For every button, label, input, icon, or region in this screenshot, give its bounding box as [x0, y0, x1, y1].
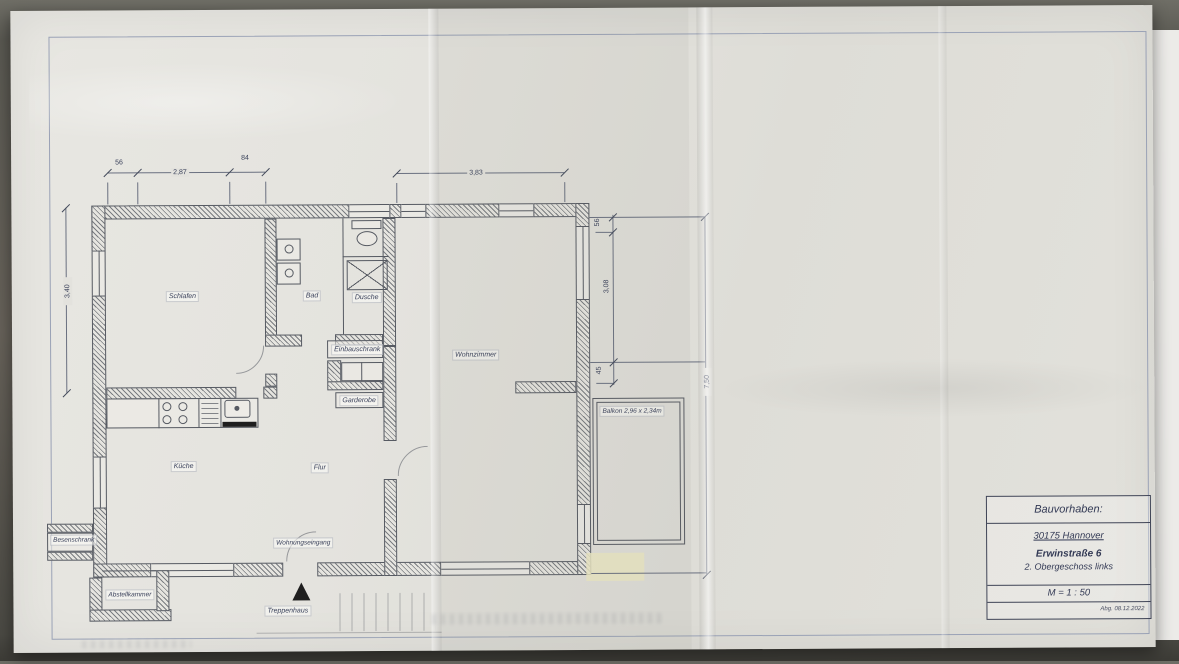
balcony-inner-line: [596, 401, 681, 540]
window-symbol: [349, 204, 389, 218]
wall-segment: [384, 479, 398, 576]
title-block-scale: M = 1 : 50: [987, 584, 1150, 602]
title-block-header: Bauvorhaben:: [987, 496, 1150, 524]
stove-burner-icon: [162, 415, 171, 424]
room-label-einbauschrank: Einbauschrank: [331, 344, 383, 355]
wall-segment: [156, 570, 169, 611]
wall-segment: [233, 563, 283, 577]
room-label-abstellkammer: Abstellkammer: [105, 589, 154, 600]
dim-label: 3,40: [63, 277, 72, 305]
balcony-outline: [592, 397, 685, 544]
witness-line: [107, 182, 108, 204]
room-label-bad: Bad: [303, 290, 322, 301]
wall-segment: [383, 346, 396, 441]
window-symbol: [93, 457, 107, 507]
dim-label: 56: [115, 158, 123, 167]
wall-segment: [47, 552, 93, 561]
witness-line: [396, 183, 397, 203]
dim-label: 56: [593, 214, 602, 230]
window-symbol: [441, 561, 529, 575]
title-block-city: 30175 Hannover: [987, 530, 1150, 542]
door-swing-arc: [236, 346, 264, 374]
wall-segment: [389, 204, 401, 218]
room-label-wohnungseingang: Wohnungseingang: [273, 537, 333, 548]
drainer-symbol: [201, 403, 218, 425]
dim-label: 45: [595, 362, 604, 378]
show-through-text: [431, 613, 661, 625]
stair-lines: [339, 593, 435, 632]
window-symbol: [401, 204, 425, 218]
entrance-arrow-icon: [292, 582, 310, 600]
dim-label: 3,83: [467, 169, 485, 178]
dim-label: 2,87: [171, 168, 189, 177]
title-block-street: Erwinstraße 6: [987, 548, 1150, 560]
wall-segment: [576, 299, 591, 505]
room-label-treppenhaus: Treppenhaus: [264, 605, 311, 616]
wall-segment: [263, 387, 277, 399]
wall-segment: [575, 203, 589, 227]
stove-burner-icon: [178, 415, 187, 424]
witness-line: [137, 182, 138, 204]
witness-line: [229, 182, 230, 204]
room-label-flur: Flur: [311, 462, 329, 473]
counter-divider: [198, 398, 199, 428]
sink-drain-icon: [234, 406, 239, 411]
witness-line: [265, 182, 266, 204]
room-label-kueche: Küche: [171, 461, 197, 472]
room-label-schlafen: Schlafen: [166, 291, 199, 302]
wall-segment: [92, 295, 107, 457]
wall-segment: [91, 204, 349, 219]
counter-divider: [158, 398, 159, 428]
wall-segment: [327, 381, 383, 390]
counter-divider: [220, 398, 221, 428]
dim-label: 7,50: [703, 368, 712, 396]
wall-segment: [265, 374, 277, 387]
window-symbol: [92, 251, 106, 295]
closet-divider: [361, 362, 362, 381]
appliance-door-icon: [285, 269, 294, 278]
witness-line: [564, 182, 565, 202]
room-label-besenschrank: Besenschrank: [50, 535, 97, 546]
room-label-dusche: Dusche: [352, 292, 382, 303]
door-swing-arc: [398, 446, 428, 476]
wall-segment: [91, 205, 105, 251]
window-symbol: [499, 203, 533, 217]
floor-plan-paper: 56 2,87 84 3,83 3,40 56 3,08 45 7,50 Sch…: [10, 5, 1155, 653]
title-block: Bauvorhaben: 30175 Hannover Erwinstraße …: [986, 495, 1152, 620]
wall-segment: [317, 562, 441, 577]
dim-label: 84: [241, 154, 249, 163]
sink-base-mark: [222, 422, 256, 427]
dim-label: 3,08: [602, 274, 611, 298]
drawing-frame: [48, 31, 1149, 640]
title-block-note: Abg. 08.12.2022: [987, 601, 1150, 617]
wall-segment: [327, 360, 341, 382]
show-through-text: [82, 640, 192, 649]
highlight-mark: [586, 553, 644, 581]
stove-burner-icon: [178, 402, 187, 411]
title-block-address: 30175 Hannover Erwinstraße 6 2. Obergesc…: [987, 523, 1150, 585]
wall-segment: [265, 334, 302, 346]
balcony-door-symbol: [577, 505, 591, 543]
floor-plan: 56 2,87 84 3,83 3,40 56 3,08 45 7,50 Sch…: [0, 0, 1179, 664]
wc-bowl-symbol: [356, 231, 377, 246]
washing-machine-door-icon: [285, 245, 294, 254]
window-symbol: [575, 227, 589, 299]
shower-symbol: [347, 260, 388, 290]
wall-segment: [515, 381, 576, 393]
room-label-garderobe: Garderobe: [339, 395, 379, 406]
title-block-floor: 2. Obergeschoss links: [987, 561, 1150, 572]
wall-segment: [264, 219, 277, 342]
stove-burner-icon: [162, 402, 171, 411]
wall-segment: [47, 524, 93, 533]
wc-cistern-symbol: [351, 220, 381, 229]
room-label-balkon: Balkon 2,96 x 2,34m: [599, 406, 664, 417]
wall-segment: [425, 203, 499, 217]
room-label-wohnzimmer: Wohnzimmer: [452, 349, 499, 360]
